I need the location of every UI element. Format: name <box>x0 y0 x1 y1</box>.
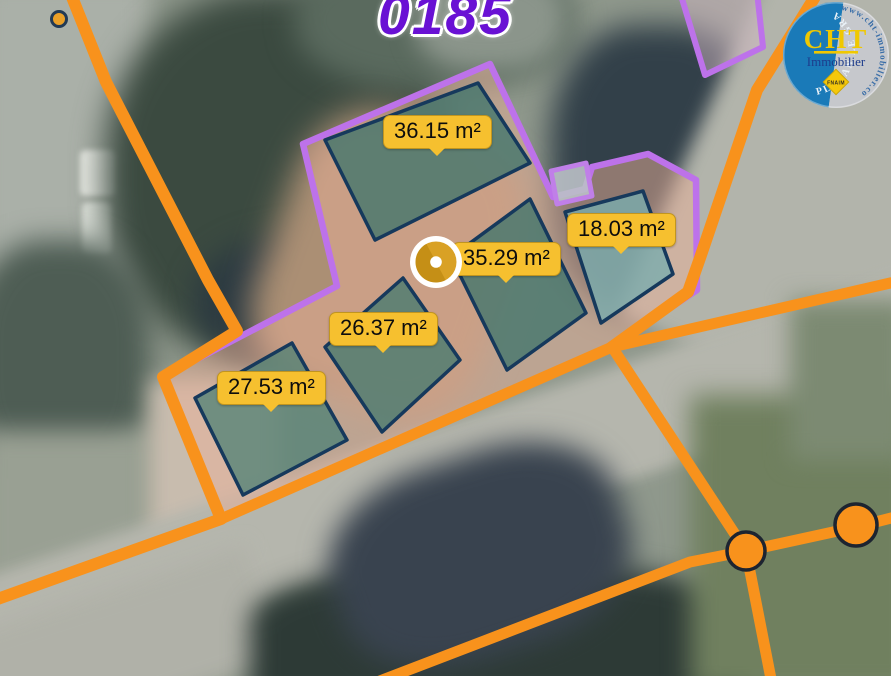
boundary-node-2[interactable] <box>835 504 877 546</box>
logo-brand-text: CHT <box>804 24 869 54</box>
area-label-text: 27.53 m² <box>228 374 315 399</box>
area-label-27-53: 27.53 m² <box>217 371 326 405</box>
area-label-18-03: 18.03 m² <box>567 213 676 247</box>
parcel-outline-top[interactable] <box>680 0 763 75</box>
area-label-text: 18.03 m² <box>578 216 665 241</box>
parcel-number: 0185 <box>378 0 513 48</box>
parcel-notch <box>551 163 592 204</box>
boundary-node-1[interactable] <box>727 532 765 570</box>
area-label-36-15: 36.15 m² <box>383 115 492 149</box>
boundary-line-bottom <box>372 551 746 676</box>
map-viewport[interactable]: 36.15 m² 18.03 m² 35.29 m² 26.37 m² 27.5… <box>0 0 891 676</box>
boundary-line-to-node <box>612 347 746 551</box>
area-label-text: 36.15 m² <box>394 118 481 143</box>
area-label-26-37: 26.37 m² <box>329 312 438 346</box>
map-features-layer <box>0 0 891 676</box>
boundary-node-small[interactable] <box>52 12 67 27</box>
logo-subtitle-text: Immobilier <box>807 54 866 69</box>
area-label-text: 35.29 m² <box>463 245 550 270</box>
agency-logo: PLELAN LE GRAND www.cht-immobilier.com C… <box>781 0 891 110</box>
fnaim-badge-text: FNAIM <box>827 81 845 87</box>
area-label-text: 26.37 m² <box>340 315 427 340</box>
boundary-line-west <box>0 0 237 601</box>
area-label-35-29: 35.29 m² <box>452 242 561 276</box>
